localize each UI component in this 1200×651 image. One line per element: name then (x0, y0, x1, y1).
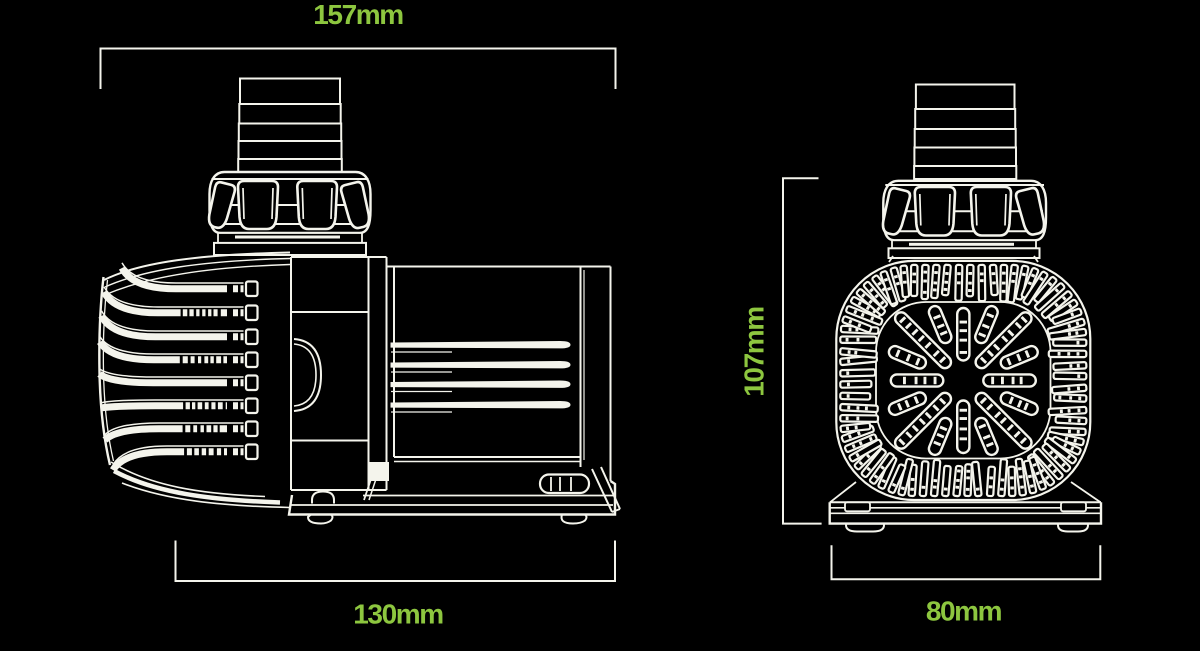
svg-text:80mm: 80mm (926, 596, 1002, 627)
svg-text:107mm: 107mm (739, 307, 770, 397)
svg-text:130mm: 130mm (353, 599, 443, 630)
svg-text:157mm: 157mm (313, 0, 403, 30)
